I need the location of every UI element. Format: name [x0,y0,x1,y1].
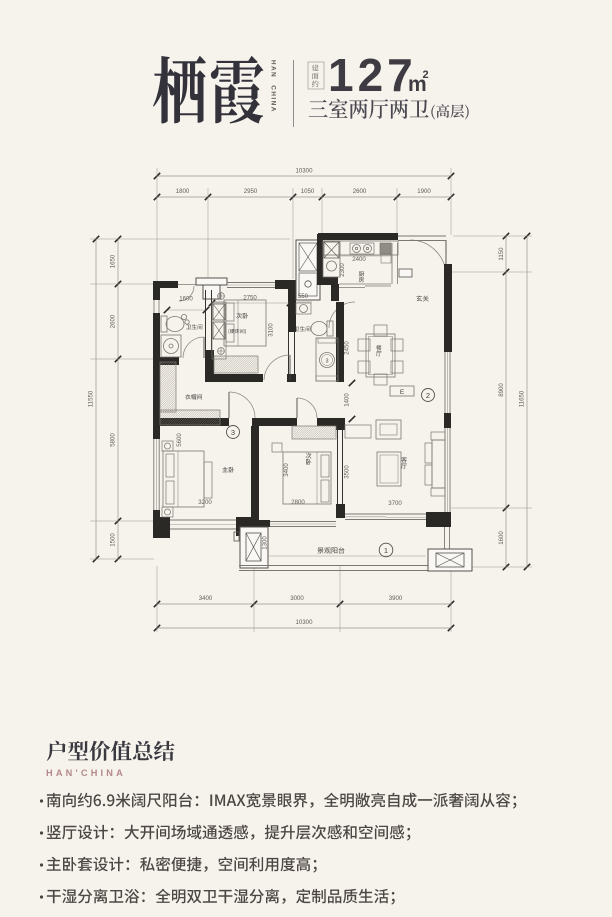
svg-text:3400: 3400 [283,463,290,477]
svg-text:11550: 11550 [88,390,95,407]
svg-text:HAN: HAN [270,60,277,78]
svg-text:2600: 2600 [110,314,117,328]
svg-text:3: 3 [325,359,328,365]
svg-text:2800: 2800 [291,499,305,506]
svg-text:1600: 1600 [498,531,505,545]
svg-text:2: 2 [423,69,429,81]
svg-text:1650: 1650 [110,254,117,268]
svg-text:3400: 3400 [199,595,213,602]
svg-text:2950: 2950 [244,188,258,195]
svg-text:CHINA: CHINA [270,85,277,113]
svg-text:10300: 10300 [296,619,314,626]
svg-text:5800: 5800 [110,433,117,447]
svg-text:2400: 2400 [352,256,366,263]
svg-text:3500: 3500 [344,465,351,479]
svg-text:1800: 1800 [176,188,190,195]
svg-text:3000: 3000 [290,595,304,602]
svg-text:550: 550 [298,293,309,300]
svg-text:2450: 2450 [344,341,351,355]
svg-text:2750: 2750 [243,295,257,302]
svg-text:1400: 1400 [344,393,351,407]
svg-text:8900: 8900 [498,383,505,397]
svg-text:2: 2 [426,391,430,400]
svg-text:3100: 3100 [268,323,275,337]
svg-text:3200: 3200 [198,499,212,506]
svg-text:10300: 10300 [296,168,314,175]
svg-text:3: 3 [231,428,235,437]
svg-text:1600: 1600 [179,296,193,303]
svg-text:1150: 1150 [498,247,505,261]
svg-text:2300: 2300 [339,263,346,277]
svg-text:5600: 5600 [176,433,183,447]
svg-text:1300: 1300 [262,536,269,550]
svg-text:1500: 1500 [110,533,117,547]
svg-text:2600: 2600 [353,188,367,195]
svg-text:11650: 11650 [519,390,526,407]
svg-text:3700: 3700 [388,500,402,507]
svg-text:3900: 3900 [389,595,403,602]
svg-text:127: 127 [328,49,417,101]
svg-text:E: E [400,389,405,396]
svg-text:1: 1 [384,546,388,555]
svg-text:1900: 1900 [417,188,431,195]
svg-text:1050: 1050 [301,188,315,195]
svg-text:HAN'CHINA: HAN'CHINA [46,768,126,778]
